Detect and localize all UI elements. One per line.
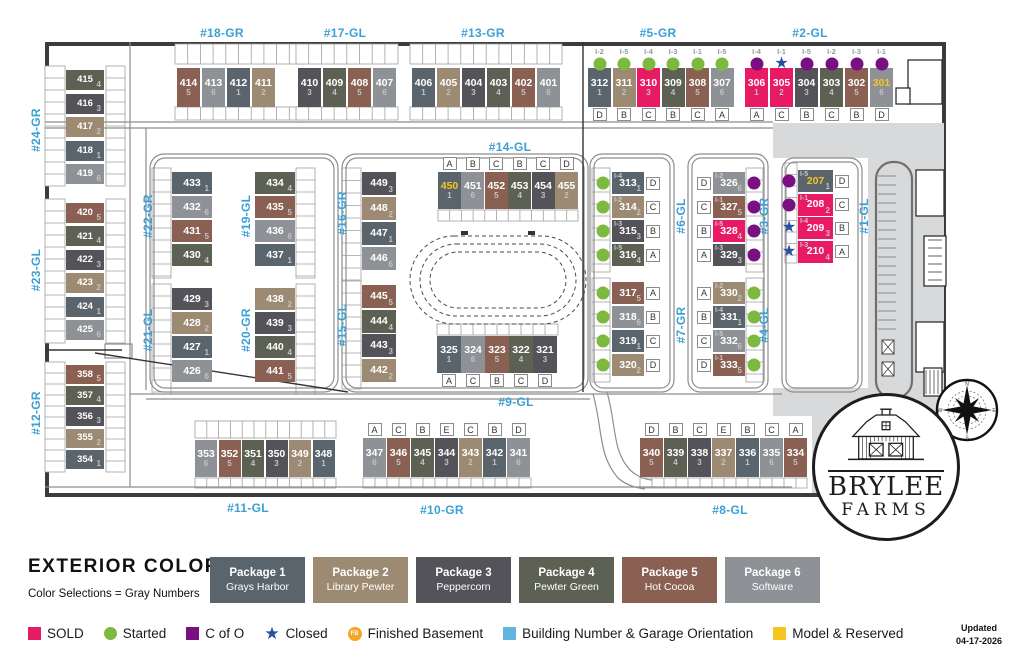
lot-package-number: 1 — [447, 356, 451, 364]
garage-letter: C — [392, 423, 406, 436]
lot-package-number: 2 — [205, 325, 209, 333]
lot-package-number: 5 — [396, 459, 400, 467]
lot: 4181 — [66, 141, 104, 161]
lot: 3266I-2 — [713, 172, 745, 194]
status-marker-cofo-icon — [748, 249, 761, 262]
lot-package-number: 1 — [637, 343, 641, 351]
garage-letter: B — [800, 108, 814, 121]
lot-package-number: 4 — [332, 89, 336, 97]
building-label: #6-GL — [674, 198, 688, 234]
building-label: #1-GL — [857, 198, 871, 234]
lot-package-number: 5 — [389, 299, 393, 307]
lot-number: 342 — [486, 448, 504, 459]
lot-package-number: 3 — [541, 192, 545, 200]
lot-number: 334 — [787, 448, 805, 459]
lot: 4266 — [172, 360, 212, 382]
lot: 3302I-2 — [713, 282, 745, 304]
lot-number: 338 — [691, 448, 709, 459]
lot-number: 207 — [807, 176, 825, 187]
lot: 3326I-5 — [713, 330, 745, 352]
lot: 3503 — [266, 440, 288, 477]
i-plan-label: I-5 — [802, 47, 811, 56]
lot-number: 323 — [488, 345, 506, 356]
garage-letter: A — [697, 249, 711, 262]
lot-package-number: 5 — [695, 89, 699, 97]
lot-number: 301 — [873, 78, 891, 89]
status-marker-started-icon — [597, 359, 610, 372]
building-label: #18-GR — [200, 26, 244, 40]
lot-number: 321 — [536, 345, 554, 356]
building-label: #21-GL — [141, 309, 155, 351]
lot-number: 444 — [370, 316, 388, 327]
lot: 3284I-5 — [713, 220, 745, 242]
lot-package-number: 6 — [738, 343, 742, 351]
lot-number: 324 — [464, 345, 482, 356]
lot: 4154 — [66, 70, 104, 90]
lot-package-number: 3 — [307, 89, 311, 97]
lot-package-number: 5 — [186, 89, 190, 97]
lot-package-number: 2 — [637, 209, 641, 217]
lot-package-number: 5 — [637, 295, 641, 303]
lot: 3202 — [612, 354, 644, 376]
i-plan-label: I-1 — [693, 47, 702, 56]
lot-package-number: 1 — [637, 185, 641, 193]
lot-package-number: 1 — [205, 349, 209, 357]
lot: 4103 — [298, 68, 321, 107]
lot-package-number: 1 — [205, 185, 209, 193]
lot-package-number: 1 — [738, 319, 742, 327]
lot-number: 425 — [77, 325, 93, 335]
lot: 3432 — [459, 438, 482, 477]
lot: 4121 — [227, 68, 250, 107]
lot-number: 431 — [183, 226, 201, 237]
garage-letter: C — [642, 108, 656, 121]
lot-number: 434 — [266, 178, 284, 189]
lot: 4493 — [362, 172, 396, 195]
building-label: #17-GL — [324, 26, 366, 40]
lot: 3164I-5 — [612, 244, 644, 266]
i-plan-label: I-4 — [644, 47, 653, 56]
lot-package-number: 3 — [274, 460, 278, 468]
status-marker-started-icon — [716, 58, 729, 71]
lot: 3335I-1 — [713, 354, 745, 376]
lot-package-number: 4 — [205, 257, 209, 265]
status-marker-cofo-icon — [825, 58, 838, 71]
lot-number: 356 — [77, 412, 93, 422]
lot-package-number: 6 — [471, 192, 475, 200]
lot-number: 429 — [183, 294, 201, 305]
lot: 3121 — [588, 68, 611, 107]
lot-package-number: 4 — [97, 396, 101, 404]
i-plan-label: I-5 — [614, 245, 622, 252]
i-plan-label: I-4 — [715, 307, 723, 314]
lot: 3311I-4 — [713, 306, 745, 328]
lot: 4501 — [438, 172, 461, 209]
lot: 4043 — [462, 68, 485, 107]
lot-number: 350 — [268, 449, 286, 460]
lot: 3076 — [711, 68, 734, 107]
i-plan-label: I-2 — [614, 197, 622, 204]
lot-package-number: 5 — [649, 459, 653, 467]
i-plan-label: I-3 — [852, 47, 861, 56]
garage-letter: B — [617, 108, 631, 121]
lot: 3574 — [66, 386, 104, 405]
lot-package-number: 1 — [389, 236, 393, 244]
lot-number: 447 — [370, 228, 388, 239]
lot: 3383 — [688, 438, 711, 477]
lot-package-number: 4 — [517, 192, 521, 200]
lot: 3514 — [242, 440, 264, 477]
barn-icon — [847, 408, 925, 464]
lot: 3052 — [770, 68, 793, 107]
lot-number: 348 — [315, 449, 333, 460]
lot-number: 424 — [77, 302, 93, 312]
lot-number: 358 — [77, 370, 93, 380]
garage-letter: C — [646, 335, 660, 348]
lot-package-number: 6 — [516, 459, 520, 467]
lot: 3293I-3 — [713, 244, 745, 266]
lot-number: 453 — [511, 181, 529, 192]
lot: 4344 — [255, 172, 295, 194]
lot-package-number: 2 — [389, 373, 393, 381]
status-marker-started-icon — [597, 287, 610, 300]
lot: 3492 — [289, 440, 311, 477]
lot-number: 209 — [807, 223, 825, 234]
lot: 3552 — [66, 429, 104, 448]
lot-package-number: 5 — [357, 89, 361, 97]
lot-package-number: 6 — [720, 89, 724, 97]
lots-layer: #18-GR4145413641214112#17-GL410340944085… — [0, 0, 1024, 668]
status-marker-started-icon — [597, 225, 610, 238]
garage-letter: B — [466, 157, 480, 170]
lot: 3131I-4 — [612, 172, 644, 194]
lot-package-number: 1 — [492, 459, 496, 467]
lot-package-number: 4 — [671, 89, 675, 97]
lot: 4371 — [255, 244, 295, 266]
lot: 3536 — [195, 440, 217, 477]
lot-number: 417 — [77, 122, 93, 132]
garage-letter: B — [646, 225, 660, 238]
garage-letter: D — [697, 359, 711, 372]
lot-package-number: 6 — [769, 459, 773, 467]
lot-number: 409 — [326, 78, 344, 89]
lot: 4085 — [348, 68, 371, 107]
lot-package-number: 3 — [389, 186, 393, 194]
lot-package-number: 6 — [97, 175, 101, 183]
lot: 3094 — [662, 68, 685, 107]
lot-package-number: 5 — [521, 89, 525, 97]
lot-number: 411 — [255, 78, 272, 89]
lot-package-number: 5 — [738, 367, 742, 375]
building-label: #19-GL — [239, 195, 253, 237]
lot: 3103 — [637, 68, 660, 107]
lot: 4076 — [373, 68, 396, 107]
lot: 2082I-1 — [798, 194, 833, 216]
lot-package-number: 2 — [288, 301, 292, 309]
lot: 3361 — [736, 438, 759, 477]
lot-number: 325 — [440, 345, 458, 356]
status-marker-cofo-icon — [748, 177, 761, 190]
lot-number: 302 — [848, 78, 866, 89]
i-plan-label: I-2 — [715, 173, 723, 180]
lot-number: 406 — [415, 78, 433, 89]
lot-package-number: 6 — [205, 209, 209, 217]
i-plan-label: I-1 — [877, 47, 886, 56]
brylee-farms-logo: BRYLEE FARMS — [812, 393, 960, 541]
garage-letter: B — [513, 157, 527, 170]
lot-package-number: 5 — [205, 233, 209, 241]
lot: 4205 — [66, 203, 104, 223]
lot-number: 422 — [77, 255, 93, 265]
lot: 4214 — [66, 226, 104, 246]
lot: 4482 — [362, 197, 396, 220]
lot: 3246 — [461, 336, 485, 373]
garage-letter: A — [835, 245, 849, 258]
lot-number: 430 — [183, 250, 201, 261]
lot: 4404 — [255, 336, 295, 358]
lot: 3345 — [784, 438, 807, 477]
building-label: #15-GL — [335, 304, 349, 346]
building-label: #7-GR — [674, 307, 688, 344]
lot-package-number: 4 — [97, 81, 101, 89]
i-plan-label: I-4 — [800, 218, 808, 225]
lot-number: 336 — [739, 448, 757, 459]
lot: 3191 — [612, 330, 644, 352]
i-plan-label: I-5 — [715, 331, 723, 338]
lot-number: 354 — [77, 455, 93, 465]
lot: 3405 — [640, 438, 663, 477]
lot: 4223 — [66, 250, 104, 270]
lot: 3541 — [66, 450, 104, 469]
garage-letter: D — [512, 423, 526, 436]
garage-letter: E — [440, 423, 454, 436]
lot-package-number: 1 — [826, 183, 830, 191]
lot-package-number: 4 — [420, 459, 424, 467]
status-marker-cofo-icon — [783, 198, 796, 211]
lot-package-number: 4 — [288, 349, 292, 357]
lot-number: 446 — [370, 253, 388, 264]
lot-number: 410 — [301, 78, 319, 89]
lot-package-number: 3 — [646, 89, 650, 97]
lot-package-number: 3 — [389, 348, 393, 356]
lot-number: 340 — [643, 448, 661, 459]
lot: 3186 — [612, 306, 644, 328]
lot: 4061 — [412, 68, 435, 107]
i-plan-label: I-2 — [715, 283, 723, 290]
lot-number: 419 — [77, 169, 93, 179]
lot: 2071I-5 — [798, 170, 833, 192]
lot-number: 420 — [77, 208, 93, 218]
lot: 3025 — [845, 68, 868, 107]
lot: 3061 — [745, 68, 768, 107]
garage-letter: C — [835, 198, 849, 211]
garage-letter: D — [538, 374, 552, 387]
lot-package-number: 6 — [382, 89, 386, 97]
lot-package-number: 6 — [205, 373, 209, 381]
lot-package-number: 1 — [97, 308, 101, 316]
lot-number: 451 — [464, 181, 482, 192]
lot-number: 341 — [510, 448, 528, 459]
building-label: #16-GR — [335, 191, 349, 235]
lot-number: 352 — [221, 449, 239, 460]
lot-number: 412 — [230, 78, 248, 89]
lot-number: 452 — [488, 181, 506, 192]
building-label: #11-GL — [227, 501, 269, 515]
lot: 3585 — [66, 365, 104, 384]
lot-package-number: 6 — [97, 331, 101, 339]
lot-package-number: 1 — [597, 89, 601, 97]
garage-letter: E — [717, 423, 731, 436]
lot-package-number: 3 — [471, 89, 475, 97]
lot-number: 318 — [619, 312, 637, 323]
status-marker-cofo-icon — [748, 225, 761, 238]
lot-package-number: 2 — [446, 89, 450, 97]
lot-package-number: 2 — [564, 192, 568, 200]
lot-number: 357 — [77, 391, 93, 401]
status-marker-started-icon — [667, 58, 680, 71]
lot: 4034 — [487, 68, 510, 107]
i-plan-label: I-5 — [620, 47, 629, 56]
lot-package-number: 2 — [779, 89, 783, 97]
lot: 3235 — [485, 336, 509, 373]
garage-letter: C — [536, 157, 550, 170]
lot-package-number: 4 — [637, 257, 641, 265]
lot-package-number: 2 — [298, 460, 302, 468]
status-marker-started-icon — [691, 58, 704, 71]
building-label: #13-GR — [461, 26, 505, 40]
lot-number: 312 — [591, 78, 609, 89]
lot: 3213 — [533, 336, 557, 373]
i-plan-label: I-3 — [669, 47, 678, 56]
lot: 4525 — [485, 172, 508, 209]
lot: 3421 — [483, 438, 506, 477]
lot-number: 445 — [370, 291, 388, 302]
garage-letter: D — [645, 423, 659, 436]
lot-number: 401 — [540, 78, 558, 89]
garage-letter: B — [850, 108, 864, 121]
lot: 4366 — [255, 220, 295, 242]
garage-letter: B — [416, 423, 430, 436]
lot-number: 426 — [183, 366, 201, 377]
garage-letter: A — [697, 287, 711, 300]
garage-letter: B — [669, 423, 683, 436]
lot-number: 405 — [440, 78, 458, 89]
lot: 4282 — [172, 312, 212, 334]
lot: 4444 — [362, 310, 396, 333]
lot: 4241 — [66, 297, 104, 317]
lot-package-number: 5 — [97, 375, 101, 383]
status-marker-started-icon — [597, 177, 610, 190]
i-plan-label: I-1 — [715, 197, 723, 204]
lot-number: 305 — [773, 78, 791, 89]
garage-letter: C — [646, 201, 660, 214]
building-label: #12-GR — [29, 391, 43, 435]
garage-letter: C — [825, 108, 839, 121]
lot: 4393 — [255, 312, 295, 334]
status-marker-cofo-icon — [850, 58, 863, 71]
lot-number: 438 — [266, 294, 284, 305]
lot-package-number: 3 — [637, 233, 641, 241]
lot-package-number: 5 — [494, 192, 498, 200]
lot-package-number: 2 — [97, 284, 101, 292]
lot: 4256 — [66, 320, 104, 340]
garage-letter: A — [789, 423, 803, 436]
lot-package-number: 6 — [288, 233, 292, 241]
lot-number: 455 — [558, 181, 576, 192]
i-plan-label: I-4 — [752, 47, 761, 56]
status-marker-started-icon — [597, 311, 610, 324]
status-marker-closed-icon: ★ — [782, 244, 796, 260]
lot: 4455 — [362, 285, 396, 308]
i-plan-label: I-2 — [595, 47, 604, 56]
lot-number: 347 — [366, 448, 384, 459]
lot-number: 407 — [376, 78, 394, 89]
lot-package-number: 3 — [97, 105, 101, 113]
garage-letter: B — [666, 108, 680, 121]
lot: 4196 — [66, 164, 104, 184]
lot-number: 308 — [689, 78, 707, 89]
lot-package-number: 6 — [637, 319, 641, 327]
status-marker-closed-icon: ★ — [782, 220, 796, 236]
garage-letter: A — [646, 249, 660, 262]
lot-package-number: 5 — [288, 209, 292, 217]
lot-number: 435 — [266, 202, 284, 213]
lot: 4552 — [555, 172, 578, 209]
garage-letter: B — [488, 423, 502, 436]
status-marker-started-icon — [597, 335, 610, 348]
lot: 4422 — [362, 359, 396, 382]
lot: 4382 — [255, 288, 295, 310]
status-marker-cofo-icon — [875, 58, 888, 71]
lot-package-number: 3 — [97, 261, 101, 269]
garage-letter: C — [691, 108, 705, 121]
lot: 4355 — [255, 196, 295, 218]
lot-number: 339 — [667, 448, 685, 459]
lot-package-number: 6 — [471, 356, 475, 364]
garage-letter: C — [466, 374, 480, 387]
svg-text:N: N — [965, 382, 969, 388]
lot-package-number: 3 — [205, 301, 209, 309]
lot-package-number: 3 — [543, 356, 547, 364]
status-marker-started-icon — [642, 58, 655, 71]
lot-package-number: 4 — [389, 324, 393, 332]
lot: 3454 — [411, 438, 434, 477]
lot-number: 210 — [807, 246, 825, 257]
garage-letter: A — [750, 108, 764, 121]
lot-package-number: 6 — [738, 185, 742, 193]
building-label: #9-GL — [498, 395, 534, 409]
status-marker-started-icon — [597, 201, 610, 214]
lot-package-number: 1 — [754, 89, 758, 97]
lot-number: 345 — [414, 448, 432, 459]
lot-package-number: 3 — [738, 257, 742, 265]
lot-package-number: 5 — [793, 459, 797, 467]
lot-number: 353 — [197, 449, 215, 460]
lot: 4331 — [172, 172, 212, 194]
garage-letter: D — [875, 108, 889, 121]
garage-letter: A — [443, 157, 457, 170]
lot-package-number: 4 — [738, 233, 742, 241]
lot-number: 441 — [266, 366, 284, 377]
lot: 3275I-1 — [713, 196, 745, 218]
lot-number: 208 — [807, 199, 825, 210]
lot-number: 432 — [183, 202, 201, 213]
garage-letter: A — [715, 108, 729, 121]
lot: 4304 — [172, 244, 212, 266]
garage-letter: C — [765, 423, 779, 436]
garage-letter: D — [593, 108, 607, 121]
garage-letter: C — [697, 201, 711, 214]
